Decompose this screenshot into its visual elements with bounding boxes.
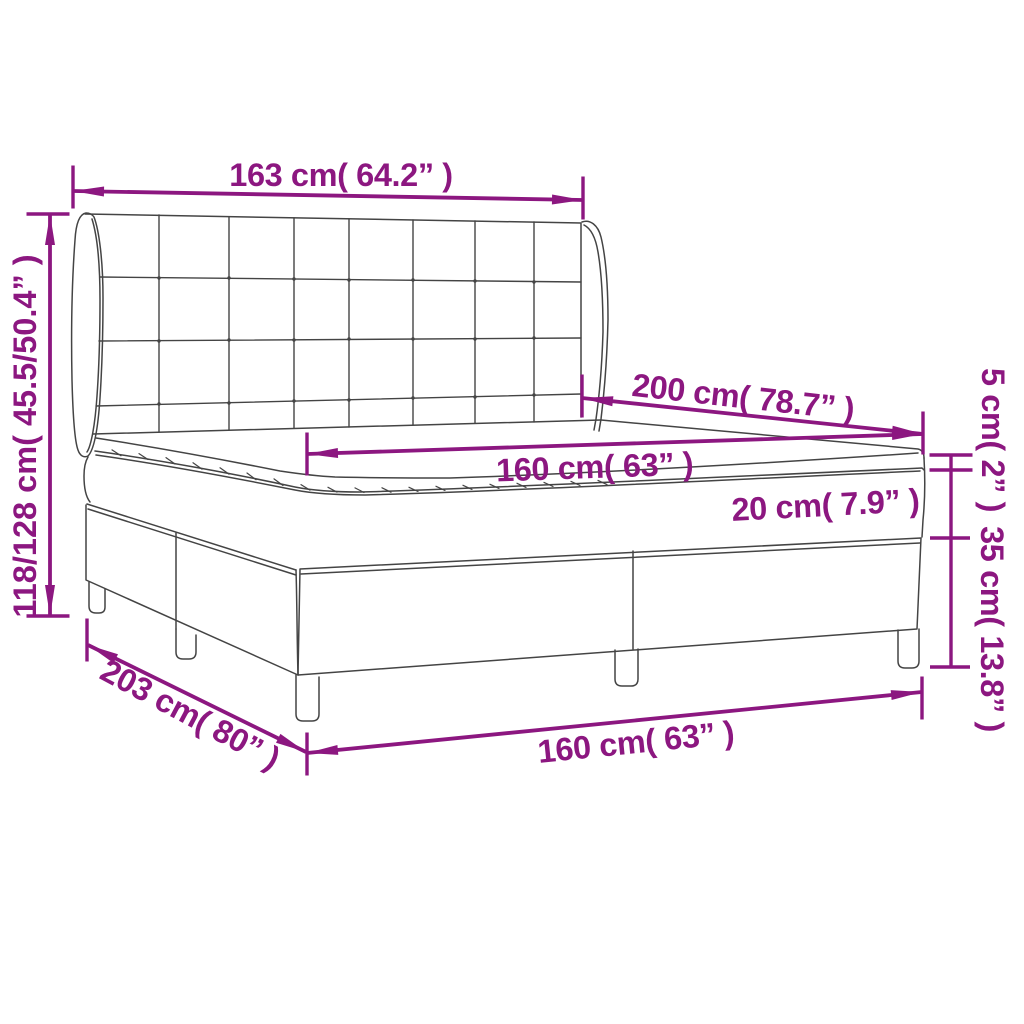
svg-text:5 cm( 2” ): 5 cm( 2” ): [975, 368, 1011, 512]
svg-text:163 cm( 64.2” ): 163 cm( 64.2” ): [229, 157, 452, 193]
svg-text:118/128 cm( 45.5/50.4” ): 118/128 cm( 45.5/50.4” ): [7, 254, 43, 617]
svg-text:160 cm( 63” ): 160 cm( 63” ): [495, 446, 693, 489]
svg-text:35 cm( 13.8” ): 35 cm( 13.8” ): [974, 526, 1010, 732]
